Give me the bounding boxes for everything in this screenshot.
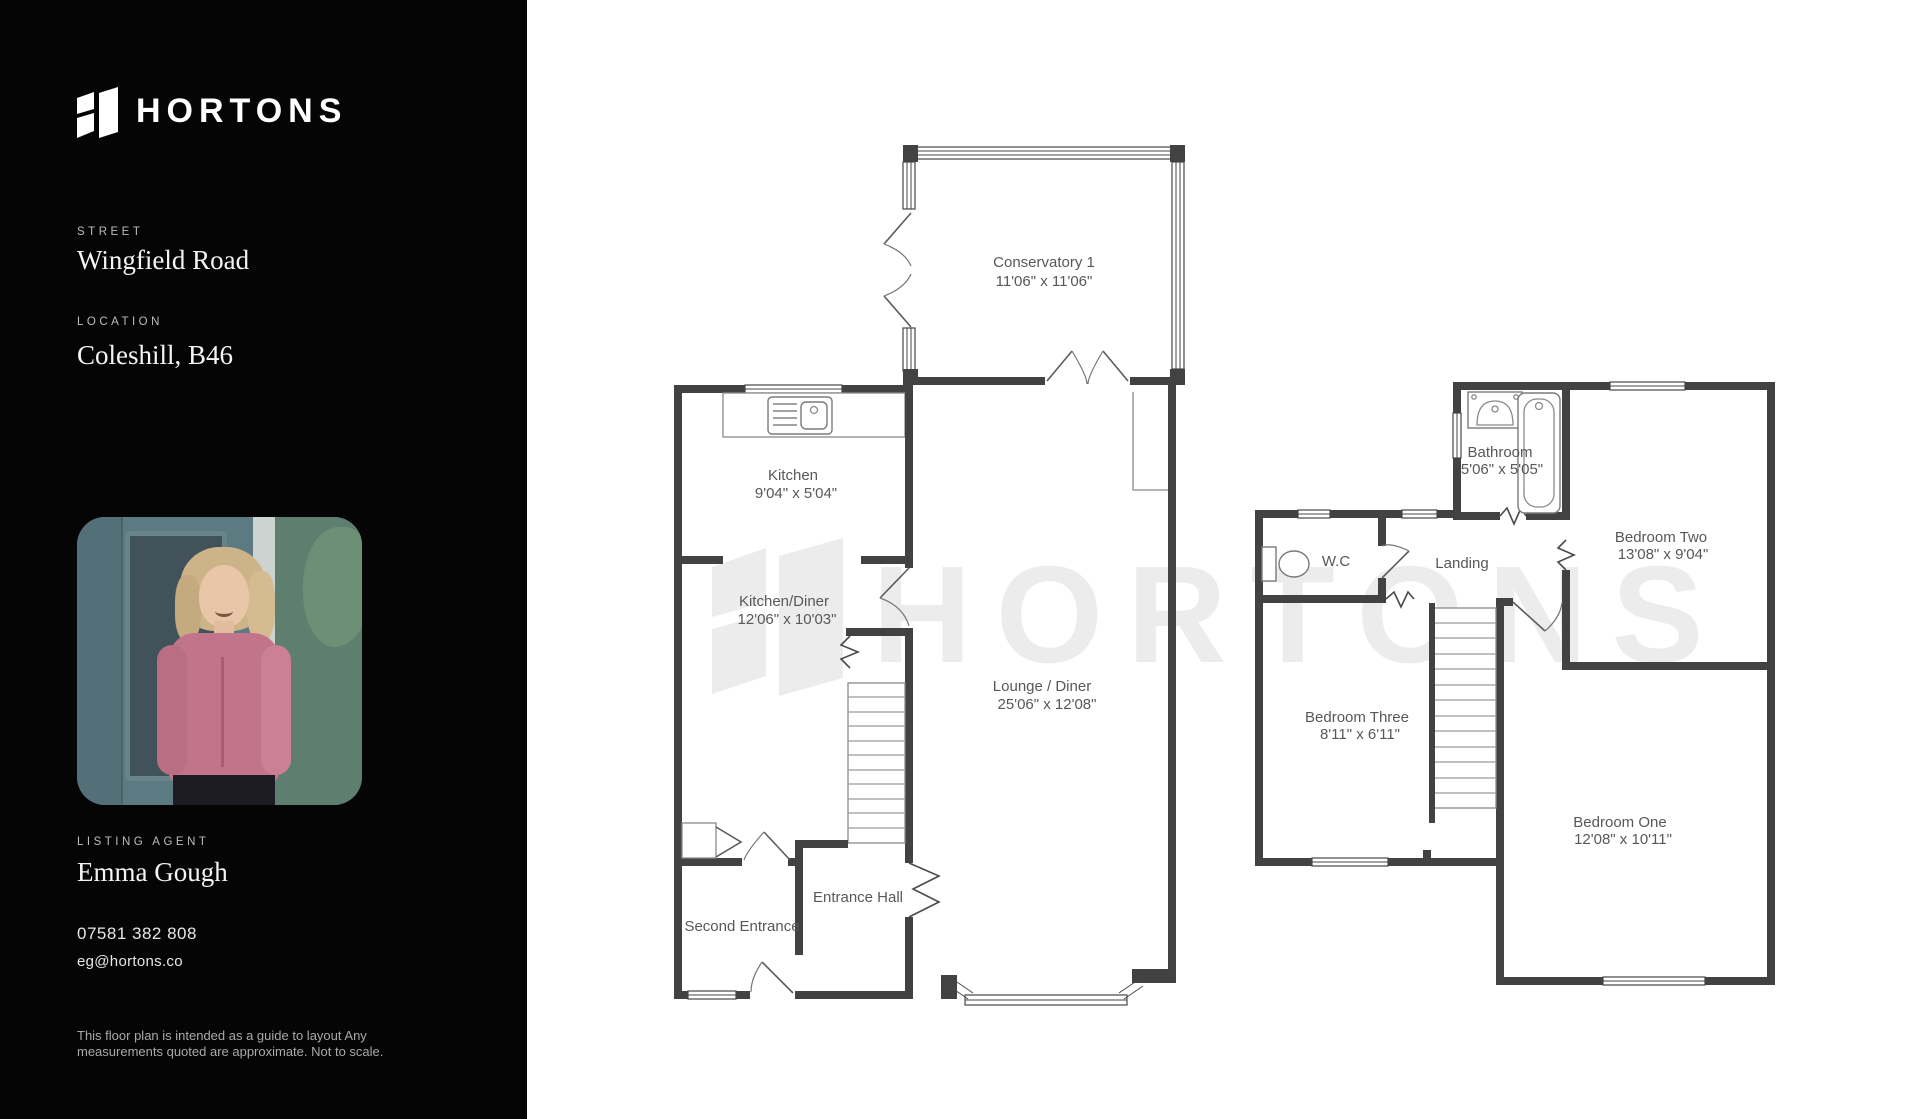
room-dims-bedroom-one: 12'08" x 10'11" (1574, 831, 1672, 848)
room-label-bathroom: Bathroom (1467, 444, 1532, 461)
room-label-wc: W.C (1322, 553, 1350, 570)
room-dims-lounge-diner: 25'06" x 12'08" (998, 696, 1097, 713)
room-label-kitchen: Kitchen (768, 467, 818, 484)
floor-plan-canvas: HORTONS (0, 0, 1920, 1119)
room-label-entrance-hall: Entrance Hall (813, 889, 903, 906)
room-label-second-entrance: Second Entrance (684, 918, 799, 935)
room-dims-bathroom: 5'06" x 5'05" (1461, 461, 1543, 478)
room-dims-kitchen-diner: 12'06" x 10'03" (738, 611, 837, 628)
room-label-conservatory: Conservatory 1 (993, 254, 1095, 271)
room-dims-kitchen: 9'04" x 5'04" (755, 485, 837, 502)
room-label-lounge-diner: Lounge / Diner (993, 678, 1091, 695)
room-dims-bedroom-two: 13'08" x 9'04" (1618, 546, 1709, 563)
room-dims-conservatory: 11'06" x 11'06" (996, 273, 1093, 290)
room-label-bedroom-three: Bedroom Three (1305, 709, 1409, 726)
page: HORTONS STREET Wingfield Road LOCATION C… (0, 0, 1920, 1119)
room-label-bedroom-two: Bedroom Two (1615, 529, 1707, 546)
room-label-bedroom-one: Bedroom One (1573, 814, 1666, 831)
room-label-kitchen-diner: Kitchen/Diner (739, 593, 829, 610)
room-dims-bedroom-three: 8'11" x 6'11" (1320, 726, 1400, 743)
room-label-landing: Landing (1435, 555, 1488, 572)
